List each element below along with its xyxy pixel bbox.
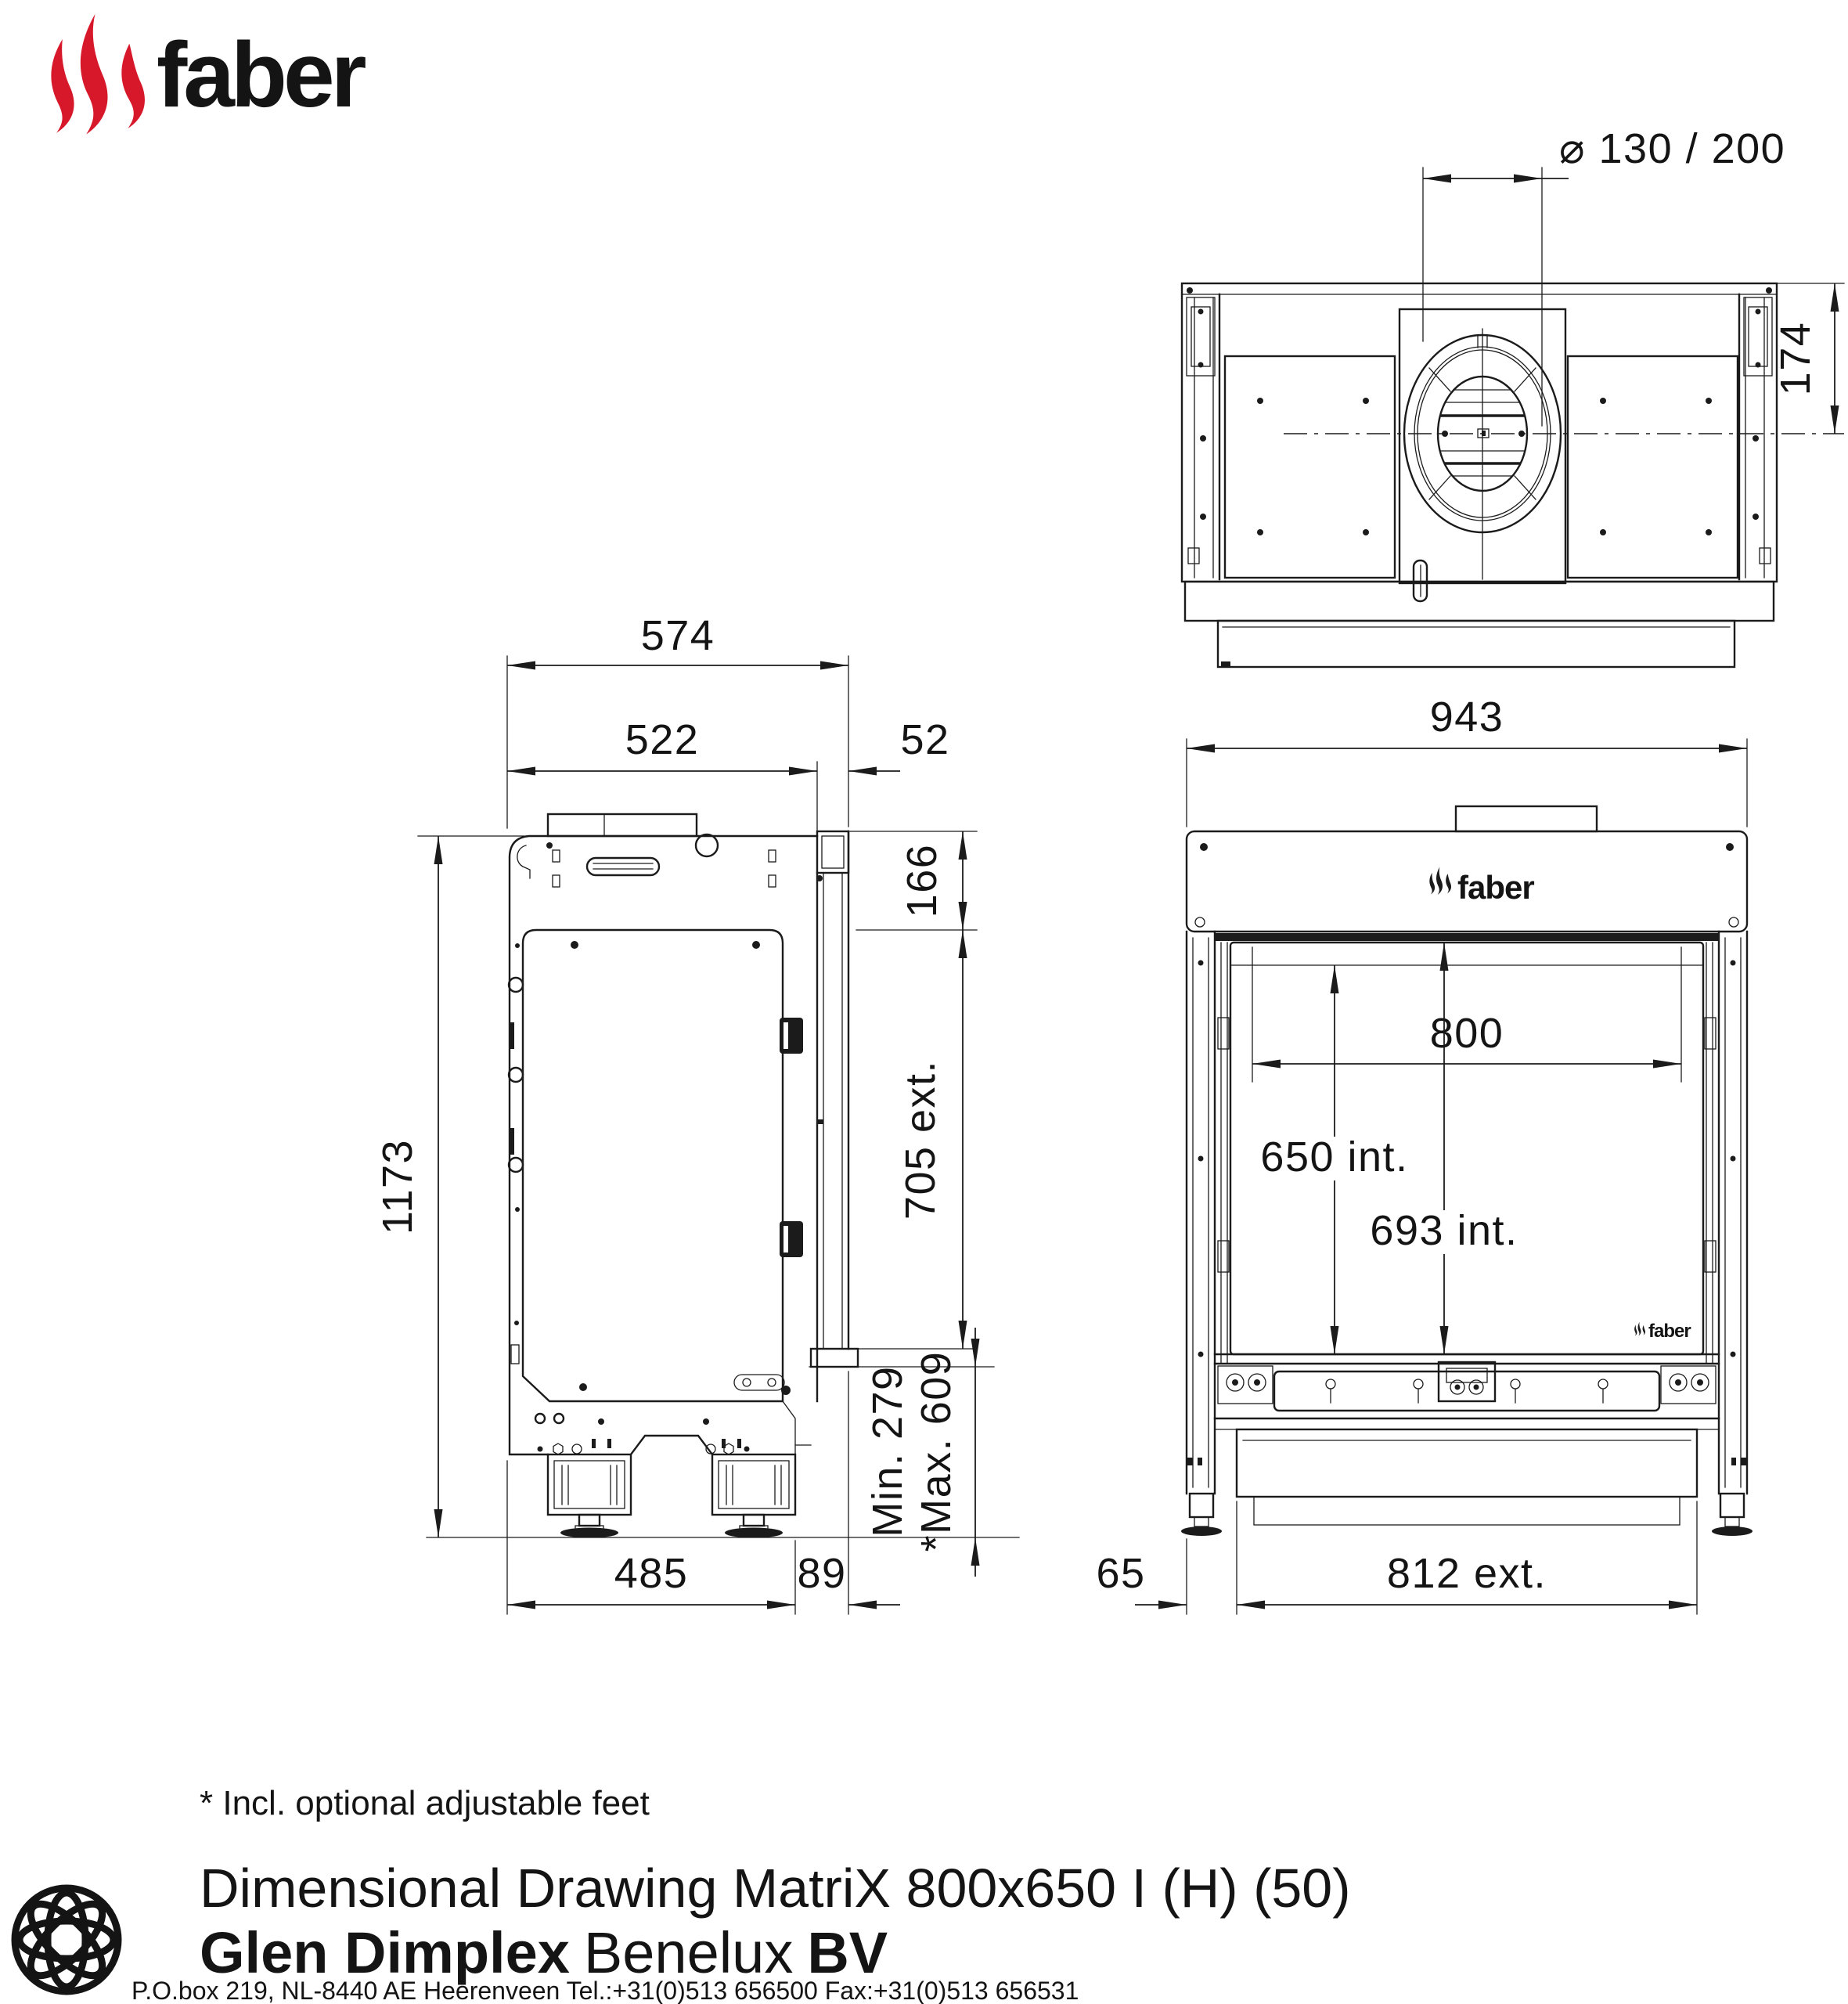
flame-icon (1634, 1322, 1645, 1336)
dim-485: 485 (614, 1550, 689, 1597)
dim-574: 574 (641, 612, 715, 659)
footnote: * Incl. optional adjustable feet (200, 1784, 650, 1822)
faber-logo: faber (51, 14, 366, 135)
brand-wordmark: faber (157, 23, 366, 127)
top-view: ⌀ 130 / 200 174 (1182, 125, 1844, 667)
dim-705-ext: 705 ext. (897, 1060, 944, 1220)
drawing-title: Dimensional Drawing MatriX 800x650 I (H)… (200, 1858, 1351, 1919)
company-bold: Glen Dimplex (200, 1920, 570, 1985)
side-view: 574 522 52 166 705 ext. 1173 Min. 279 *M… (374, 612, 1019, 1614)
drawing-sheet: faber (0, 0, 1848, 2004)
flame-icon (51, 14, 145, 135)
dim-max-609: *Max. 609 (913, 1351, 960, 1552)
dim-89: 89 (797, 1550, 846, 1597)
company-suffix: BV (807, 1920, 888, 1985)
front-panel-logo: faber (1429, 867, 1534, 906)
dim-693-int: 693 int. (1370, 1207, 1518, 1254)
dim-1173: 1173 (374, 1139, 421, 1234)
company-regular: Benelux (584, 1920, 793, 1985)
glen-dimplex-logo (15, 1888, 118, 1991)
dim-65: 65 (1096, 1550, 1145, 1597)
dim-812-ext: 812 ext. (1387, 1550, 1547, 1597)
side-view-dimensions: 574 522 52 166 705 ext. 1173 Min. 279 *M… (374, 612, 994, 1614)
flame-icon (1429, 867, 1451, 895)
side-adjustable-feet (548, 1454, 795, 1538)
dim-min-279: Min. 279 (864, 1365, 911, 1537)
dim-650-int: 650 int. (1260, 1134, 1408, 1180)
glass-logo: faber (1634, 1321, 1691, 1342)
dim-522: 522 (625, 716, 700, 763)
dim-943: 943 (1430, 694, 1504, 741)
front-adjustable-feet (1181, 1494, 1753, 1536)
dim-166: 166 (899, 844, 946, 918)
footer: * Incl. optional adjustable feet Dimensi… (15, 1784, 1351, 2004)
dim-flue-diameter: ⌀ 130 / 200 (1559, 125, 1785, 172)
brand-wordmark-small: faber (1457, 869, 1534, 906)
dim-800: 800 (1430, 1010, 1504, 1057)
dim-174: 174 (1772, 322, 1819, 396)
company-address: P.O.box 219, NL-8440 AE Heerenveen Tel.:… (131, 1977, 1079, 2004)
front-view: faber faber (1096, 694, 1753, 1614)
dim-52: 52 (900, 716, 949, 763)
brand-wordmark-tiny: faber (1648, 1321, 1691, 1342)
company-name: Glen DimplexBeneluxBV (200, 1920, 888, 1985)
top-view-dimensions: ⌀ 130 / 200 174 (1423, 125, 1844, 434)
